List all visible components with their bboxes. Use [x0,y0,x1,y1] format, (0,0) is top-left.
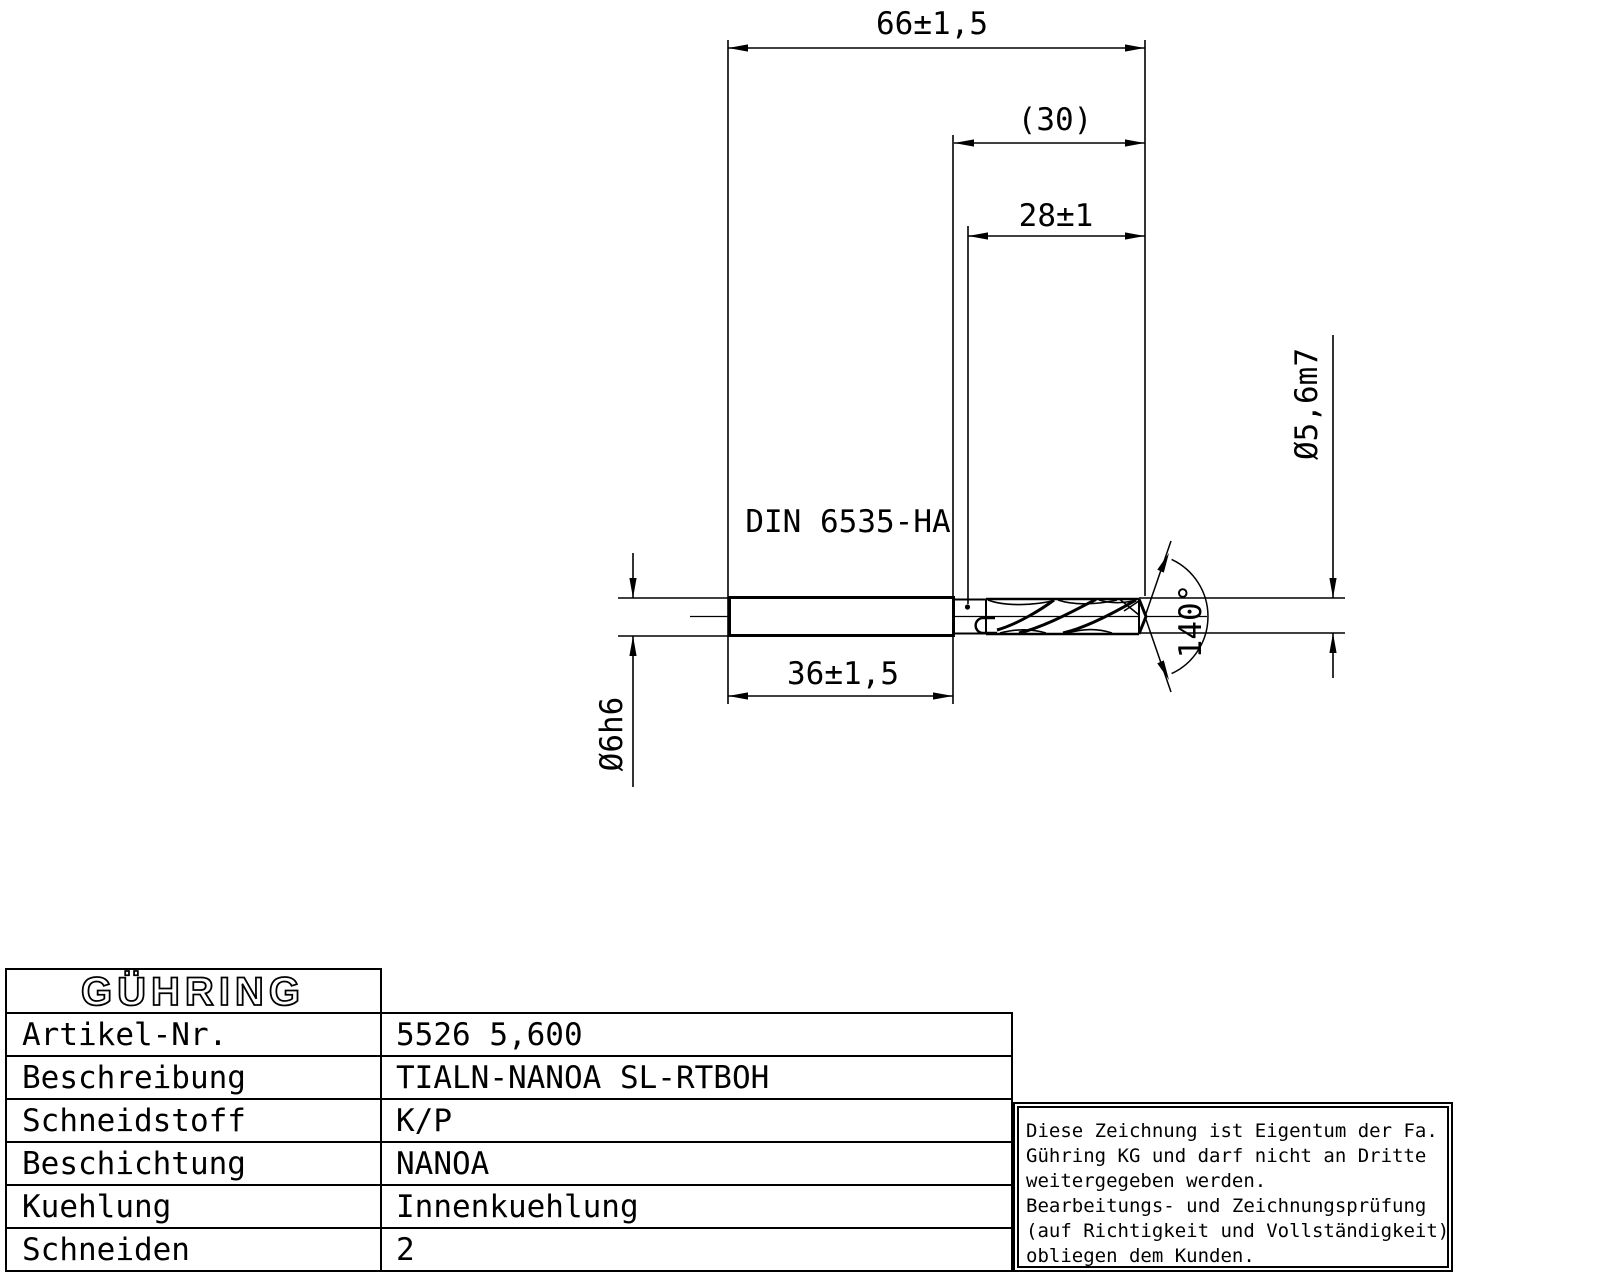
table-row: Schneidstoff K/P [7,1098,1011,1141]
row-value: 5526 5,600 [382,1014,1011,1055]
row-label: Schneidstoff [7,1100,382,1141]
notice-line: (auf Richtigkeit und Vollständigkeit) [1026,1219,1443,1244]
drill-tip [1139,599,1146,634]
table-row: Schneiden 2 [7,1227,1011,1270]
row-value: Innenkuehlung [382,1186,1011,1227]
dimension-flute-length: 28±1 [968,198,1145,240]
ownership-notice-text: Diese Zeichnung ist Eigentum der Fa. Güh… [1017,1106,1449,1268]
step-ref-text: (30) [1018,102,1093,138]
row-label: Artikel-Nr. [7,1014,382,1055]
notice-line: Gühring KG und darf nicht an Dritte [1026,1144,1443,1169]
shank-length-text: 36±1,5 [787,656,899,692]
drill-technical-drawing: 66±1,5 (30) 28±1 36±1,5 [0,0,1600,960]
row-label: Beschreibung [7,1057,382,1098]
row-value: 2 [382,1229,1011,1270]
shank-diameter-text: Ø6h6 [594,697,630,772]
overall-length-text: 66±1,5 [876,6,988,42]
notice-line: obliegen dem Kunden. [1026,1244,1443,1268]
table-row: Artikel-Nr. 5526 5,600 [7,1014,1011,1055]
table-row: Kuehlung Innenkuehlung [7,1184,1011,1227]
row-label: Schneiden [7,1229,382,1270]
dimension-overall-length: 66±1,5 [728,6,1145,52]
shank-standard-label: DIN 6535-HA [745,504,951,540]
brand-logo-cell: GÜHRING [5,968,382,1014]
point-angle-text: 140° [1173,584,1209,659]
dimension-tool-diameter: Ø5,6m7 [1289,335,1337,678]
tool-diameter-text: Ø5,6m7 [1289,348,1325,460]
row-value: TIALN-NANOA SL-RTBOH [382,1057,1011,1098]
drawing-sheet: 66±1,5 (30) 28±1 36±1,5 [0,0,1600,1280]
brand-logo: GÜHRING [7,970,380,1012]
drill-shank [730,598,954,636]
table-row: Beschreibung TIALN-NANOA SL-RTBOH [7,1055,1011,1098]
notice-line: Diese Zeichnung ist Eigentum der Fa. [1026,1119,1443,1144]
ownership-notice-box: Diese Zeichnung ist Eigentum der Fa. Güh… [1013,1102,1453,1272]
row-label: Beschichtung [7,1143,382,1184]
row-label: Kuehlung [7,1186,382,1227]
table-row: Beschichtung NANOA [7,1141,1011,1184]
extension-lines [618,40,1345,704]
spec-table: Artikel-Nr. 5526 5,600 Beschreibung TIAL… [5,1012,1013,1272]
flute-length-reference-dot [965,604,970,609]
row-value: K/P [382,1100,1011,1141]
brand-logo-text: GÜHRING [81,970,305,1012]
dimension-step-ref: (30) [954,102,1145,147]
row-value: NANOA [382,1143,1011,1184]
dimension-shank-diameter: Ø6h6 [594,553,637,787]
notice-line: Bearbeitungs- und Zeichnungsprüfung [1026,1194,1443,1219]
dimension-shank-length: 36±1,5 [728,656,953,700]
notice-line: weitergegeben werden. [1026,1169,1443,1194]
flute-length-text: 28±1 [1019,198,1094,234]
